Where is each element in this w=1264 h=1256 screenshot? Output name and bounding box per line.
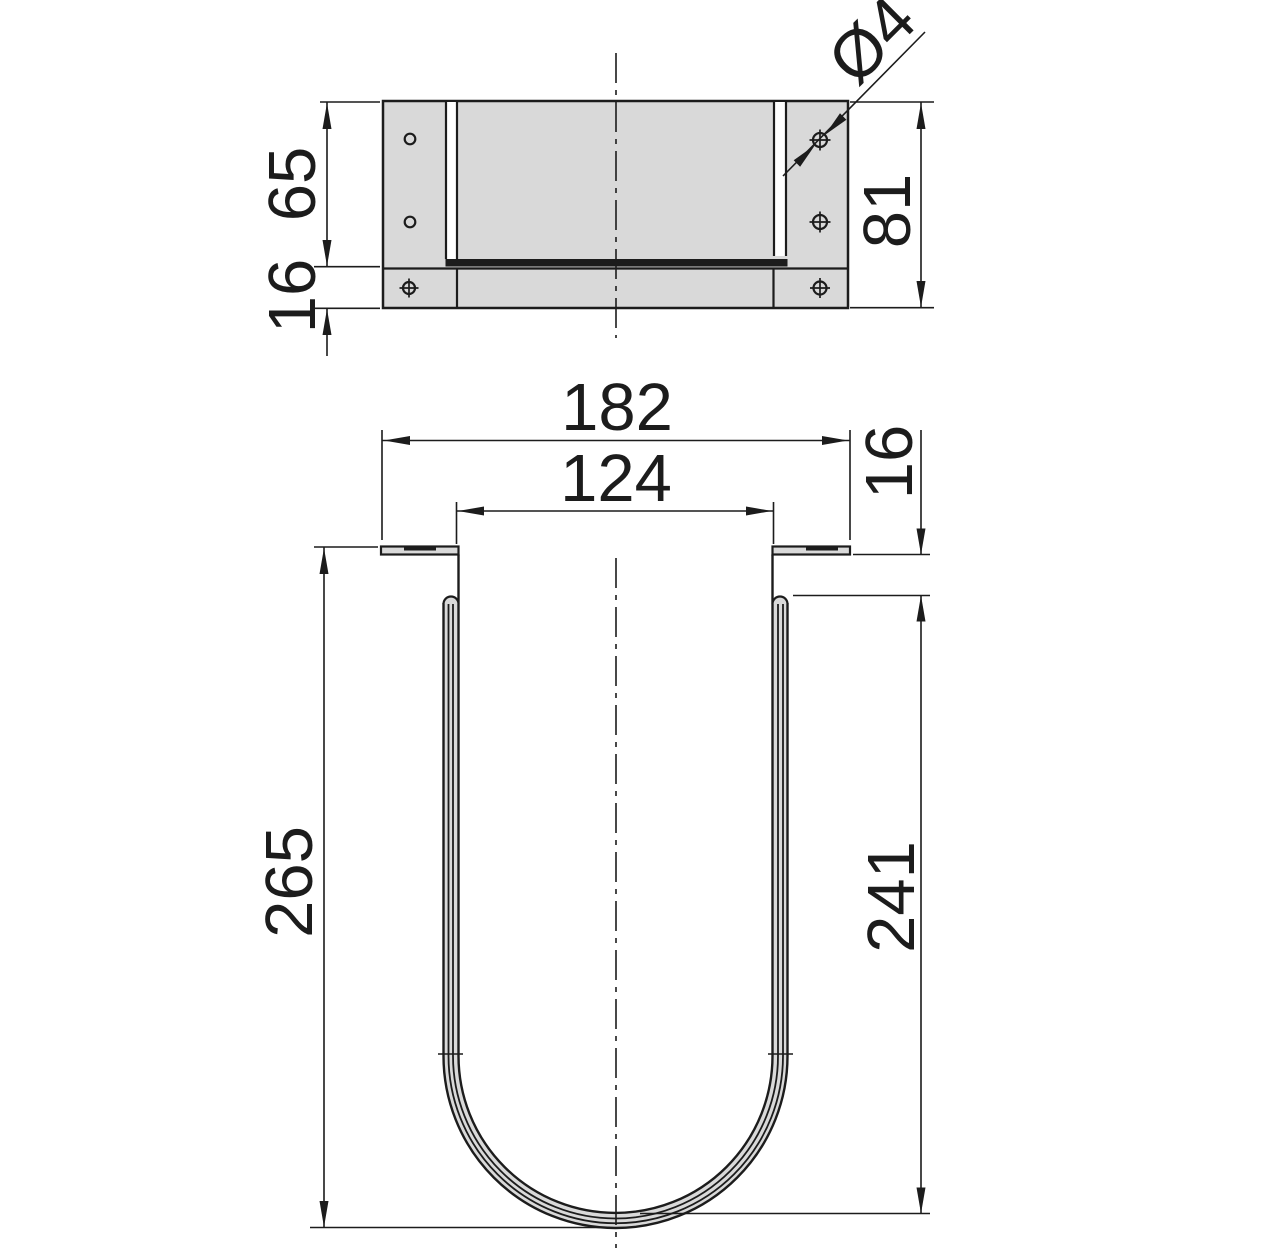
- plan-left-wall-channel: [446, 102, 457, 259]
- plan-view: 65 16 81 Ø4: [255, 0, 934, 356]
- dim-height-overall: 265: [252, 547, 610, 1228]
- dim-hole-diameter-label: Ø4: [814, 0, 930, 98]
- right-liner-rolled-edge: [773, 597, 788, 604]
- dim-depth-back-flange-label: 16: [255, 259, 330, 334]
- front-view: 182 124 16 241 265: [252, 370, 930, 1248]
- dim-depth-back-flange: 16: [255, 259, 380, 356]
- dim-width-overall-label: 182: [561, 370, 673, 445]
- right-wall-band-fill: [773, 600, 788, 1056]
- plan-right-wall-channel: [774, 102, 786, 256]
- dim-depth-body-label: 65: [255, 147, 330, 222]
- dim-height-overall-label: 265: [252, 826, 327, 938]
- dim-width-inner-label: 124: [560, 441, 672, 516]
- technical-drawing-page: 65 16 81 Ø4: [0, 0, 1264, 1256]
- dim-depth-body: 65: [255, 102, 380, 267]
- dim-depth-inner-label: 241: [854, 841, 929, 953]
- dim-flange-offset-label: 16: [852, 425, 927, 500]
- dim-depth-total-label: 81: [850, 174, 925, 249]
- left-wall-band-fill: [444, 600, 459, 1056]
- left-liner-rolled-edge: [444, 597, 459, 604]
- dim-flange-offset: 16: [793, 425, 930, 596]
- dim-depth-total: 81: [850, 102, 934, 308]
- technical-drawing: 65 16 81 Ø4: [0, 0, 1264, 1256]
- dim-width-inner: 124: [457, 441, 774, 544]
